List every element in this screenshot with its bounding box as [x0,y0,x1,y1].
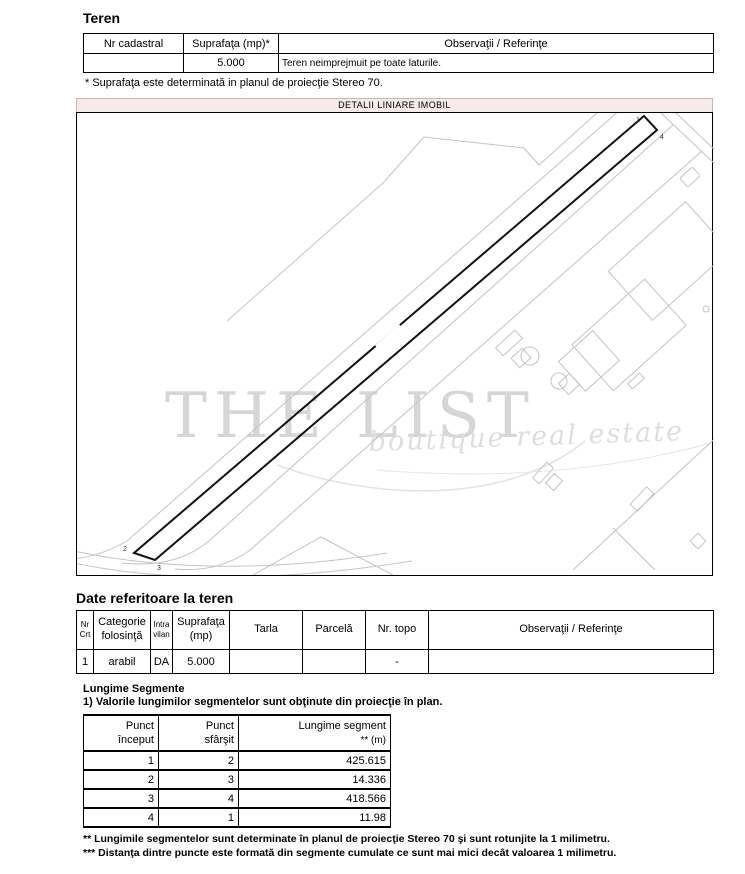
teren-table-header-row: Nr cadastral Suprafaţa (mp)* Observaţii … [84,34,714,54]
cell-observatii [429,650,714,674]
boundary-line [77,113,620,559]
date-teren-data-row: 1 arabil DA 5.000 - [77,650,714,674]
col-header-punct-inceput: Punct început [84,715,159,751]
building [680,167,701,187]
date-teren-header-row: Nr Crt Categorie folosinţă Intra vilan S… [77,611,714,650]
footnote-2star: ** Lungimile segmentelor sunt determinat… [83,832,745,846]
neighbor-parcel-lines [77,113,714,575]
watermark: THE LIST boutique real estate [165,379,711,491]
cell-lungime: 425.615 [239,751,391,770]
header-line: Punct [206,720,234,732]
cell-lungime: 418.566 [239,789,391,808]
road-curve [77,551,387,566]
parcel-point-label-3: 3 [157,565,161,572]
cell-punct-inceput: 4 [84,808,159,827]
building [572,279,686,391]
teren-table-data-row: 5.000 Teren neimprejmuit pe toate laturi… [84,54,714,73]
corner-road-line [661,113,714,165]
segment-row: 3 4 418.566 [84,789,391,808]
segments-note: 1) Valorile lungimilor segmentelor sunt … [83,696,745,708]
segment-row: 1 2 425.615 [84,751,391,770]
cell-tarla [230,650,303,674]
building [546,473,563,490]
header-line: sfârşit [205,734,234,746]
col-header-suprafata: Suprafaţa (mp)* [184,34,279,54]
segments-footnotes: ** Lungimile segmentelor sunt determinat… [83,832,745,860]
header-line: Suprafaţa [177,616,225,628]
col-header-observatii: Observaţii / Referinţe [429,611,714,650]
col-header-tarla: Tarla [230,611,303,650]
segments-header-row: Punct început Punct sfârşit Lungime segm… [84,715,391,751]
cell-punct-sfarsit: 3 [159,770,239,789]
footnote-3star: *** Distanţa dintre puncte este formată … [83,846,745,860]
section-title-lungime-segmente: Lungime Segmente [83,683,745,695]
teren-table: Nr cadastral Suprafaţa (mp)* Observaţii … [83,33,714,73]
boundary-line [175,151,702,570]
parcel-gap [375,324,403,350]
well-circle [521,347,539,365]
cadastral-sketch: THE LIST boutique real estate [77,113,714,575]
col-header-nr-topo: Nr. topo [366,611,429,650]
cell-punct-inceput: 3 [84,789,159,808]
map-block: DETALII LINIARE IMOBIL THE LIST boutique… [76,98,713,576]
col-header-suprafata-mp: Suprafaţa (mp) [173,611,230,650]
segment-row: 2 3 14.336 [84,770,391,789]
header-line: Nr [81,620,89,629]
header-line: Punct [126,720,154,732]
header-line: (mp) [190,630,213,642]
col-header-punct-sfarsit: Punct sfârşit [159,715,239,751]
well-circle [551,373,567,389]
header-line: Crt [80,630,91,639]
cell-punct-inceput: 1 [84,751,159,770]
cell-suprafata: 5.000 [184,54,279,73]
col-header-nr-crt: Nr Crt [77,611,94,650]
building [690,533,706,549]
header-line: folosinţă [102,630,143,642]
cell-parcela [303,650,366,674]
section-title-date-teren: Date referitoare la teren [76,590,745,606]
parcel-outline [134,116,657,560]
cell-punct-sfarsit: 4 [159,789,239,808]
col-header-lungime-segment: Lungime segment ** (m) [239,715,391,751]
cell-lungime: 11.98 [239,808,391,827]
cell-punct-sfarsit: 2 [159,751,239,770]
map-canvas: THE LIST boutique real estate [76,112,713,576]
cell-categorie: arabil [94,650,151,674]
branch-boundary [613,528,655,570]
col-header-parcela: Parcelă [303,611,366,650]
cell-intravilan: DA [151,650,173,674]
zigzag-boundary [227,113,597,321]
building [558,373,579,394]
parcel-point-label-1: 1 [636,117,640,124]
footnote-suprafata: * Suprafaţa este determinată in planul d… [85,77,745,89]
header-line: Categorie [98,616,146,628]
header-line: vilan [153,630,169,639]
segments-table: Punct început Punct sfârşit Lungime segm… [83,714,391,828]
parcel-point-label-4: 4 [660,134,664,141]
cell-observatii: Teren neimprejmuit pe toate laturile. [279,54,714,73]
header-line: Intra [153,620,169,629]
parcel-point-label-2: 2 [123,546,127,553]
cell-lungime: 14.336 [239,770,391,789]
header-unit: ** (m) [360,735,386,746]
building-outlines [496,167,714,549]
cell-nr-topo: - [366,650,429,674]
subject-parcel: 1 4 2 3 [123,116,664,572]
col-header-observatii: Observaţii / Referinţe [279,34,714,54]
col-header-categorie: Categorie folosinţă [94,611,151,650]
col-header-intravilan: Intra vilan [151,611,173,650]
section-title-teren: Teren [83,10,745,26]
header-line: început [118,734,154,746]
building [533,462,554,484]
cell-nr-cadastral [84,54,184,73]
boundary-line [122,125,673,564]
segment-row: 4 1 11.98 [84,808,391,827]
map-title-bar: DETALII LINIARE IMOBIL [76,98,713,112]
cell-punct-sfarsit: 1 [159,808,239,827]
cell-nr-crt: 1 [77,650,94,674]
building [559,331,620,392]
cadastral-document-page: Teren Nr cadastral Suprafaţa (mp)* Obser… [0,10,745,874]
cell-punct-inceput: 2 [84,770,159,789]
triangle-boundary [253,537,393,575]
date-teren-table: Nr Crt Categorie folosinţă Intra vilan S… [76,610,714,674]
col-header-nr-cadastral: Nr cadastral [84,34,184,54]
header-line: Lungime segment [299,720,386,732]
small-circle [703,306,709,312]
cell-suprafata-mp: 5.000 [173,650,230,674]
